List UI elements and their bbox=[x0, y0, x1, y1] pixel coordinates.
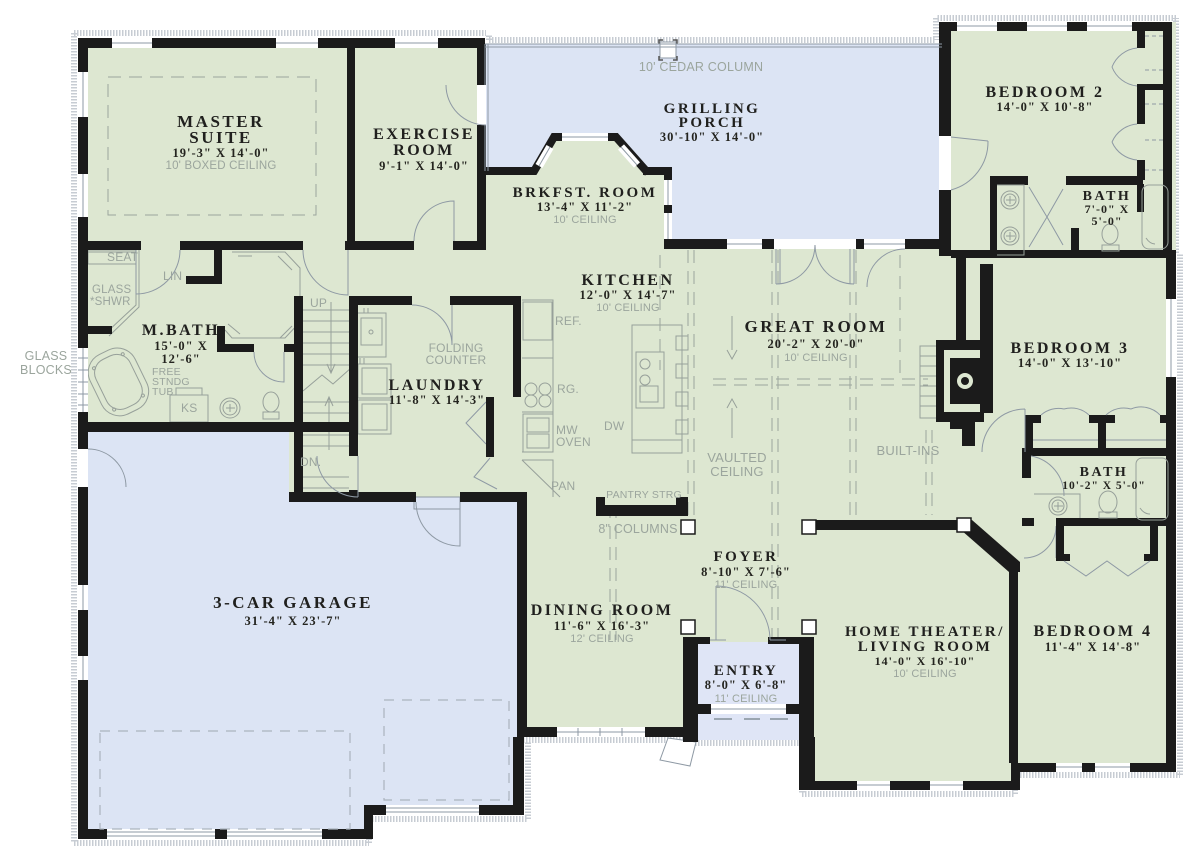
svg-text:BLOCKS: BLOCKS bbox=[20, 363, 72, 377]
svg-text:M.BATH: M.BATH bbox=[142, 322, 220, 339]
svg-text:10' BOXED CEILING: 10' BOXED CEILING bbox=[165, 160, 276, 172]
svg-text:12'-6": 12'-6" bbox=[161, 352, 200, 366]
svg-text:11'-4" X 14'-8": 11'-4" X 14'-8" bbox=[1045, 640, 1141, 654]
svg-text:11' CEILING: 11' CEILING bbox=[715, 579, 778, 591]
svg-text:SEAT: SEAT bbox=[107, 250, 139, 264]
svg-text:RG.: RG. bbox=[557, 382, 579, 396]
svg-text:GLASS: GLASS bbox=[25, 349, 68, 363]
svg-text:12'-0" X 14'-7": 12'-0" X 14'-7" bbox=[580, 288, 677, 302]
svg-text:LIN: LIN bbox=[163, 269, 182, 283]
svg-text:31'-4" X 23'-7": 31'-4" X 23'-7" bbox=[245, 614, 342, 628]
svg-text:19'-3" X 14'-0": 19'-3" X 14'-0" bbox=[173, 146, 270, 160]
svg-text:BEDROOM 4: BEDROOM 4 bbox=[1034, 623, 1153, 640]
svg-text:KITCHEN: KITCHEN bbox=[581, 272, 674, 289]
svg-text:DINING ROOM: DINING ROOM bbox=[531, 602, 674, 619]
svg-text:14'-0" X 10'-8": 14'-0" X 10'-8" bbox=[997, 100, 1094, 114]
svg-text:8" COLUMNS: 8" COLUMNS bbox=[598, 522, 677, 536]
svg-text:10' CEILING: 10' CEILING bbox=[784, 352, 848, 364]
svg-text:CEILING: CEILING bbox=[710, 464, 763, 479]
svg-text:12' CEILING: 12' CEILING bbox=[570, 633, 634, 645]
svg-text:ENTRY: ENTRY bbox=[714, 663, 778, 679]
svg-text:10' CEILING: 10' CEILING bbox=[553, 214, 617, 226]
svg-text:*SHWR: *SHWR bbox=[90, 296, 131, 308]
svg-text:COUNTER: COUNTER bbox=[426, 353, 487, 367]
svg-text:FOYER: FOYER bbox=[714, 549, 779, 565]
svg-text:BRKFST. ROOM: BRKFST. ROOM bbox=[513, 185, 658, 201]
svg-text:KS: KS bbox=[181, 401, 197, 415]
svg-text:LAUNDRY: LAUNDRY bbox=[389, 377, 486, 394]
svg-text:DW: DW bbox=[604, 419, 625, 433]
svg-text:14'-0" X 16'-10": 14'-0" X 16'-10" bbox=[875, 654, 976, 668]
svg-text:EXERCISE: EXERCISE bbox=[373, 126, 475, 143]
svg-text:REF.: REF. bbox=[555, 314, 582, 328]
svg-text:10' CEILING: 10' CEILING bbox=[893, 668, 957, 680]
svg-text:LIVING ROOM: LIVING ROOM bbox=[858, 639, 993, 655]
svg-text:3-CAR GARAGE: 3-CAR GARAGE bbox=[213, 593, 373, 612]
svg-text:10' CEDAR COLUMN: 10' CEDAR COLUMN bbox=[639, 60, 763, 74]
svg-text:13'-4" X 11'-2": 13'-4" X 11'-2" bbox=[537, 200, 633, 214]
svg-text:8'-10" X 7'-6": 8'-10" X 7'-6" bbox=[701, 565, 791, 579]
svg-text:GLASS: GLASS bbox=[92, 284, 131, 296]
svg-text:11' CEILING: 11' CEILING bbox=[715, 693, 778, 705]
svg-text:20'-2" X 20'-0": 20'-2" X 20'-0" bbox=[768, 337, 865, 351]
svg-text:BATH: BATH bbox=[1080, 465, 1129, 480]
svg-text:5'-0": 5'-0" bbox=[1092, 214, 1123, 228]
svg-text:10' CEILING: 10' CEILING bbox=[596, 302, 660, 314]
svg-text:10'-2" X 5'-0": 10'-2" X 5'-0" bbox=[1062, 480, 1146, 492]
svg-text:8'-0" X 6'-8": 8'-0" X 6'-8" bbox=[705, 678, 787, 692]
svg-text:BEDROOM 3: BEDROOM 3 bbox=[1011, 340, 1130, 357]
svg-text:OVEN: OVEN bbox=[556, 435, 591, 449]
svg-text:ROOM: ROOM bbox=[393, 142, 455, 159]
svg-text:UP: UP bbox=[310, 296, 327, 310]
svg-text:SUITE: SUITE bbox=[189, 128, 253, 147]
svg-text:BEDROOM 2: BEDROOM 2 bbox=[986, 84, 1105, 101]
svg-text:DN.: DN. bbox=[300, 455, 321, 469]
svg-text:11'-8" X 14'-3": 11'-8" X 14'-3" bbox=[389, 393, 485, 407]
svg-text:PORCH: PORCH bbox=[679, 115, 746, 131]
svg-text:11'-6" X 16'-3": 11'-6" X 16'-3" bbox=[554, 619, 650, 633]
svg-text:BUILT-INS: BUILT-INS bbox=[877, 443, 940, 458]
svg-text:15'-0" X: 15'-0" X bbox=[154, 339, 207, 353]
svg-text:PAN: PAN bbox=[551, 479, 575, 493]
svg-text:GREAT ROOM: GREAT ROOM bbox=[745, 317, 888, 336]
svg-text:TUB: TUB bbox=[152, 386, 174, 398]
svg-text:HOME THEATER/: HOME THEATER/ bbox=[845, 624, 1005, 640]
svg-text:PANTRY STRG: PANTRY STRG bbox=[606, 489, 682, 501]
svg-text:30'-10" X 14'-0": 30'-10" X 14'-0" bbox=[660, 130, 764, 144]
svg-text:14'-0" X 13'-10": 14'-0" X 13'-10" bbox=[1018, 356, 1122, 370]
svg-text:9'-1" X 14'-0": 9'-1" X 14'-0" bbox=[379, 159, 469, 173]
svg-text:VAULTED: VAULTED bbox=[707, 450, 766, 465]
